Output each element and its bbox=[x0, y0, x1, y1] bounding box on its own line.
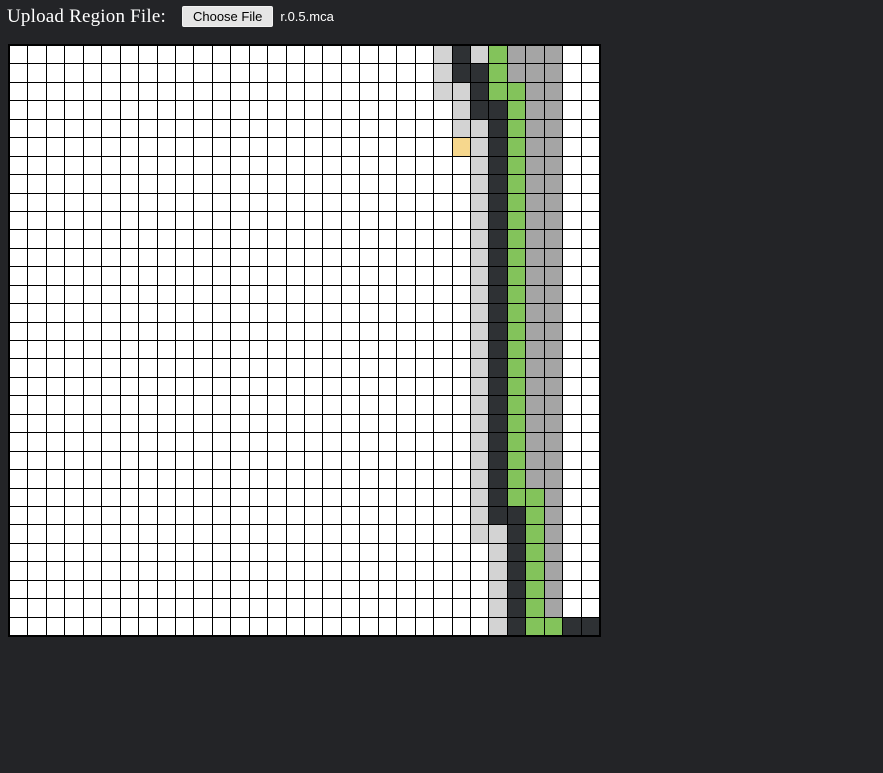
chunk-cell bbox=[323, 120, 340, 137]
chunk-cell bbox=[287, 120, 304, 137]
chunk-cell bbox=[250, 581, 267, 598]
chunk-cell bbox=[139, 396, 156, 413]
chunk-cell bbox=[397, 341, 414, 358]
chunk-cell bbox=[305, 46, 322, 63]
chunk-cell bbox=[342, 359, 359, 376]
chunk-cell bbox=[489, 452, 506, 469]
chunk-cell bbox=[434, 267, 451, 284]
chunk-cell bbox=[287, 470, 304, 487]
chunk-cell bbox=[139, 212, 156, 229]
chunk-cell bbox=[158, 581, 175, 598]
chunk-cell bbox=[508, 83, 525, 100]
chunk-cell bbox=[582, 378, 599, 395]
chunk-cell bbox=[342, 378, 359, 395]
chunk-cell bbox=[176, 489, 193, 506]
chunk-cell bbox=[250, 230, 267, 247]
chunk-cell bbox=[416, 581, 433, 598]
chunk-cell bbox=[47, 341, 64, 358]
chunk-cell bbox=[194, 157, 211, 174]
chunk-cell bbox=[268, 138, 285, 155]
chunk-cell bbox=[453, 323, 470, 340]
chunk-cell bbox=[250, 46, 267, 63]
chunk-cell bbox=[323, 230, 340, 247]
chunk-cell bbox=[434, 230, 451, 247]
chunk-cell bbox=[287, 323, 304, 340]
chunk-cell bbox=[563, 562, 580, 579]
chunk-cell bbox=[489, 618, 506, 635]
chunk-cell bbox=[268, 599, 285, 616]
chunk-cell bbox=[416, 562, 433, 579]
chunk-cell bbox=[416, 267, 433, 284]
chunk-cell bbox=[582, 249, 599, 266]
chunk-cell bbox=[121, 452, 138, 469]
chunk-cell bbox=[139, 433, 156, 450]
chunk-cell bbox=[526, 452, 543, 469]
chunk-cell bbox=[28, 194, 45, 211]
chunk-cell bbox=[176, 304, 193, 321]
chunk-cell bbox=[563, 157, 580, 174]
chunk-cell bbox=[65, 470, 82, 487]
chunk-cell bbox=[139, 452, 156, 469]
chunk-cell bbox=[545, 304, 562, 321]
chunk-cell bbox=[379, 286, 396, 303]
chunk-cell bbox=[287, 64, 304, 81]
chunk-cell bbox=[10, 581, 27, 598]
chunk-cell bbox=[65, 249, 82, 266]
chunk-cell bbox=[158, 138, 175, 155]
chunk-cell bbox=[360, 323, 377, 340]
chunk-cell bbox=[508, 452, 525, 469]
chunk-cell bbox=[47, 618, 64, 635]
chunk-cell bbox=[545, 525, 562, 542]
chunk-cell bbox=[268, 489, 285, 506]
chunk-cell bbox=[416, 452, 433, 469]
chunk-cell bbox=[508, 359, 525, 376]
chunk-cell bbox=[250, 101, 267, 118]
chunk-cell bbox=[379, 230, 396, 247]
chunk-cell bbox=[545, 230, 562, 247]
chunk-cell bbox=[84, 267, 101, 284]
chunk-cell bbox=[471, 64, 488, 81]
chunk-cell bbox=[84, 341, 101, 358]
chunk-cell bbox=[84, 618, 101, 635]
chunk-cell bbox=[360, 120, 377, 137]
chunk-cell bbox=[10, 101, 27, 118]
chunk-cell bbox=[489, 175, 506, 192]
chunk-cell bbox=[84, 304, 101, 321]
chunk-cell bbox=[47, 194, 64, 211]
chunk-cell bbox=[397, 415, 414, 432]
chunk-cell bbox=[526, 544, 543, 561]
chunk-cell bbox=[28, 489, 45, 506]
chunk-cell bbox=[453, 415, 470, 432]
chunk-cell bbox=[250, 194, 267, 211]
chunk-cell bbox=[489, 212, 506, 229]
chunk-cell bbox=[508, 341, 525, 358]
chunk-cell bbox=[416, 157, 433, 174]
chunk-cell bbox=[508, 618, 525, 635]
chunk-cell bbox=[582, 46, 599, 63]
chunk-cell bbox=[102, 378, 119, 395]
chunk-cell bbox=[323, 64, 340, 81]
chunk-cell bbox=[158, 525, 175, 542]
chunk-cell bbox=[213, 194, 230, 211]
chunk-cell bbox=[416, 341, 433, 358]
chunk-cell bbox=[250, 138, 267, 155]
chunk-cell bbox=[213, 359, 230, 376]
chunk-cell bbox=[47, 64, 64, 81]
chunk-cell bbox=[121, 359, 138, 376]
chunk-cell bbox=[582, 138, 599, 155]
chunk-cell bbox=[65, 489, 82, 506]
chunk-cell bbox=[194, 323, 211, 340]
chunk-cell bbox=[508, 194, 525, 211]
chunk-cell bbox=[121, 230, 138, 247]
chunk-cell bbox=[489, 341, 506, 358]
chunk-cell bbox=[250, 525, 267, 542]
chunk-cell bbox=[526, 433, 543, 450]
chunk-cell bbox=[582, 286, 599, 303]
chunk-cell bbox=[360, 194, 377, 211]
chunk-cell bbox=[102, 544, 119, 561]
chunk-cell bbox=[158, 212, 175, 229]
chunk-cell bbox=[471, 470, 488, 487]
chunk-cell bbox=[471, 304, 488, 321]
chunk-cell bbox=[250, 120, 267, 137]
chunk-cell bbox=[121, 618, 138, 635]
chunk-cell bbox=[508, 378, 525, 395]
chunk-cell bbox=[305, 378, 322, 395]
chunk-cell bbox=[379, 175, 396, 192]
chunk-cell bbox=[305, 599, 322, 616]
chunk-cell bbox=[28, 304, 45, 321]
chunk-cell bbox=[323, 415, 340, 432]
chunk-cell bbox=[47, 230, 64, 247]
chunk-cell bbox=[158, 452, 175, 469]
chunk-cell bbox=[102, 101, 119, 118]
chunk-cell bbox=[342, 396, 359, 413]
chunk-cell bbox=[139, 618, 156, 635]
chunk-cell bbox=[379, 101, 396, 118]
chunk-cell bbox=[231, 157, 248, 174]
chunk-cell bbox=[250, 415, 267, 432]
chunk-cell bbox=[250, 378, 267, 395]
chunk-cell bbox=[231, 304, 248, 321]
chunk-cell bbox=[102, 175, 119, 192]
chunk-cell bbox=[287, 101, 304, 118]
chunk-cell bbox=[305, 452, 322, 469]
chunk-cell bbox=[563, 359, 580, 376]
chunk-cell bbox=[231, 562, 248, 579]
chunk-cell bbox=[194, 267, 211, 284]
chunk-cell bbox=[139, 64, 156, 81]
chunk-cell bbox=[379, 581, 396, 598]
chunk-cell bbox=[102, 212, 119, 229]
chunk-cell bbox=[471, 433, 488, 450]
chunk-cell bbox=[471, 599, 488, 616]
chunk-cell bbox=[434, 359, 451, 376]
chunk-cell bbox=[65, 599, 82, 616]
chunk-cell bbox=[453, 267, 470, 284]
chunk-cell bbox=[10, 83, 27, 100]
chunk-cell bbox=[10, 525, 27, 542]
chunk-cell bbox=[287, 378, 304, 395]
chunk-cell bbox=[250, 83, 267, 100]
chunk-cell bbox=[102, 138, 119, 155]
chunk-cell bbox=[379, 359, 396, 376]
chunk-cell bbox=[121, 581, 138, 598]
chunk-cell bbox=[453, 194, 470, 211]
chunk-cell bbox=[268, 83, 285, 100]
chunk-cell bbox=[65, 562, 82, 579]
chunk-cell bbox=[28, 433, 45, 450]
chunk-cell bbox=[416, 599, 433, 616]
chunk-cell bbox=[47, 525, 64, 542]
chunk-cell bbox=[213, 507, 230, 524]
chunk-cell bbox=[139, 249, 156, 266]
chunk-cell bbox=[176, 323, 193, 340]
chunk-cell bbox=[508, 249, 525, 266]
chunk-cell bbox=[250, 544, 267, 561]
chunk-cell bbox=[102, 599, 119, 616]
chunk-cell bbox=[47, 507, 64, 524]
chunk-cell bbox=[102, 396, 119, 413]
chunk-cell bbox=[10, 249, 27, 266]
chunk-cell bbox=[194, 396, 211, 413]
chunk-cell bbox=[213, 249, 230, 266]
chunk-cell bbox=[10, 470, 27, 487]
chunk-cell bbox=[397, 64, 414, 81]
chunk-cell bbox=[397, 470, 414, 487]
chunk-cell bbox=[213, 433, 230, 450]
chunk-cell bbox=[508, 138, 525, 155]
chunk-cell bbox=[545, 507, 562, 524]
chunk-cell bbox=[213, 267, 230, 284]
chunk-cell bbox=[121, 83, 138, 100]
chunk-cell bbox=[47, 212, 64, 229]
chunk-cell bbox=[10, 230, 27, 247]
chunk-cell bbox=[176, 433, 193, 450]
chunk-cell bbox=[176, 212, 193, 229]
chunk-cell bbox=[268, 212, 285, 229]
chunk-cell bbox=[323, 562, 340, 579]
chunk-cell bbox=[305, 83, 322, 100]
chunk-cell bbox=[102, 64, 119, 81]
chunk-cell bbox=[176, 267, 193, 284]
chunk-cell bbox=[323, 433, 340, 450]
chunk-cell bbox=[250, 304, 267, 321]
chunk-cell bbox=[397, 175, 414, 192]
chunk-cell bbox=[268, 618, 285, 635]
chunk-cell bbox=[416, 138, 433, 155]
chunk-cell bbox=[397, 249, 414, 266]
chunk-cell bbox=[342, 581, 359, 598]
chunk-cell bbox=[397, 618, 414, 635]
chunk-cell bbox=[305, 359, 322, 376]
chunk-cell bbox=[342, 194, 359, 211]
chunk-cell bbox=[545, 194, 562, 211]
chunk-cell bbox=[28, 581, 45, 598]
chunk-cell bbox=[102, 452, 119, 469]
chunk-cell bbox=[287, 175, 304, 192]
chunk-cell bbox=[250, 175, 267, 192]
chunk-cell bbox=[489, 323, 506, 340]
chunk-cell bbox=[434, 378, 451, 395]
chunk-cell bbox=[471, 378, 488, 395]
chunk-cell bbox=[489, 194, 506, 211]
chunk-cell bbox=[231, 230, 248, 247]
chunk-cell bbox=[545, 323, 562, 340]
chunk-cell bbox=[360, 138, 377, 155]
chunk-cell bbox=[563, 544, 580, 561]
chunk-cell bbox=[194, 212, 211, 229]
chunk-cell bbox=[526, 230, 543, 247]
chunk-cell bbox=[231, 286, 248, 303]
chunk-cell bbox=[250, 507, 267, 524]
chunk-cell bbox=[47, 286, 64, 303]
chunk-cell bbox=[176, 562, 193, 579]
chunk-cell bbox=[397, 507, 414, 524]
chunk-cell bbox=[139, 286, 156, 303]
chunk-cell bbox=[526, 304, 543, 321]
chunk-cell bbox=[397, 157, 414, 174]
chunk-cell bbox=[65, 618, 82, 635]
chunk-cell bbox=[231, 64, 248, 81]
chunk-cell bbox=[563, 433, 580, 450]
chunk-cell bbox=[342, 323, 359, 340]
chunk-cell bbox=[526, 286, 543, 303]
chunk-cell bbox=[28, 46, 45, 63]
chunk-cell bbox=[194, 581, 211, 598]
chunk-cell bbox=[176, 359, 193, 376]
chunk-cell bbox=[489, 249, 506, 266]
chunk-cell bbox=[287, 359, 304, 376]
chunk-cell bbox=[416, 433, 433, 450]
chunk-cell bbox=[84, 562, 101, 579]
chunk-cell bbox=[582, 581, 599, 598]
chunk-cell bbox=[526, 525, 543, 542]
chunk-cell bbox=[102, 194, 119, 211]
chunk-cell bbox=[323, 249, 340, 266]
chunk-cell bbox=[176, 64, 193, 81]
chunk-cell bbox=[65, 341, 82, 358]
chunk-cell bbox=[582, 64, 599, 81]
chunk-cell bbox=[213, 415, 230, 432]
chunk-cell bbox=[213, 618, 230, 635]
chunk-cell bbox=[47, 599, 64, 616]
chunk-cell bbox=[268, 452, 285, 469]
selected-file-name: r.0.5.mca bbox=[280, 9, 333, 24]
chunk-cell bbox=[287, 396, 304, 413]
chunk-cell bbox=[526, 599, 543, 616]
chunk-cell bbox=[508, 120, 525, 137]
chunk-cell bbox=[397, 120, 414, 137]
chunk-cell bbox=[453, 230, 470, 247]
chunk-cell bbox=[213, 83, 230, 100]
chunk-cell bbox=[453, 341, 470, 358]
chunk-cell bbox=[268, 396, 285, 413]
chunk-cell bbox=[121, 507, 138, 524]
chunk-cell bbox=[231, 618, 248, 635]
chunk-cell bbox=[360, 249, 377, 266]
chunk-cell bbox=[305, 544, 322, 561]
chunk-cell bbox=[489, 470, 506, 487]
chunk-cell bbox=[139, 470, 156, 487]
chunk-cell bbox=[84, 581, 101, 598]
chunk-cell bbox=[65, 507, 82, 524]
chunk-cell bbox=[582, 304, 599, 321]
chunk-cell bbox=[65, 396, 82, 413]
chunk-cell bbox=[323, 304, 340, 321]
chunk-cell bbox=[471, 120, 488, 137]
chunk-cell bbox=[508, 470, 525, 487]
chunk-cell bbox=[194, 618, 211, 635]
chunk-cell bbox=[323, 341, 340, 358]
chunk-cell bbox=[268, 507, 285, 524]
chunk-cell bbox=[379, 341, 396, 358]
chunk-cell bbox=[268, 120, 285, 137]
chunk-cell bbox=[323, 489, 340, 506]
chunk-cell bbox=[471, 249, 488, 266]
chunk-cell bbox=[453, 489, 470, 506]
chunk-cell bbox=[194, 101, 211, 118]
chunk-cell bbox=[121, 175, 138, 192]
chunk-cell bbox=[231, 599, 248, 616]
chunk-cell bbox=[342, 230, 359, 247]
chunk-cell bbox=[231, 507, 248, 524]
chunk-cell bbox=[65, 138, 82, 155]
chunk-cell bbox=[434, 433, 451, 450]
chunk-cell bbox=[194, 138, 211, 155]
chunk-cell bbox=[416, 489, 433, 506]
chunk-cell bbox=[102, 415, 119, 432]
chunk-cell bbox=[342, 489, 359, 506]
chunk-cell bbox=[489, 562, 506, 579]
chunk-cell bbox=[360, 489, 377, 506]
chunk-cell bbox=[231, 175, 248, 192]
chunk-cell bbox=[10, 267, 27, 284]
chunk-cell bbox=[434, 562, 451, 579]
chunk-cell bbox=[508, 286, 525, 303]
chunk-cell bbox=[84, 230, 101, 247]
chunk-cell bbox=[268, 525, 285, 542]
chunk-cell bbox=[416, 194, 433, 211]
choose-file-button[interactable]: Choose File bbox=[182, 6, 273, 27]
chunk-cell bbox=[582, 544, 599, 561]
chunk-cell bbox=[84, 525, 101, 542]
chunk-cell bbox=[397, 378, 414, 395]
chunk-cell bbox=[582, 359, 599, 376]
chunk-cell bbox=[489, 286, 506, 303]
chunk-cell bbox=[268, 267, 285, 284]
chunk-cell bbox=[360, 46, 377, 63]
chunk-cell bbox=[397, 267, 414, 284]
chunk-cell bbox=[250, 452, 267, 469]
chunk-cell bbox=[268, 249, 285, 266]
chunk-cell bbox=[176, 101, 193, 118]
chunk-cell bbox=[489, 544, 506, 561]
chunk-cell bbox=[545, 212, 562, 229]
chunk-cell bbox=[416, 101, 433, 118]
chunk-cell bbox=[176, 230, 193, 247]
chunk-cell bbox=[453, 562, 470, 579]
chunk-cell bbox=[121, 415, 138, 432]
chunk-cell bbox=[360, 544, 377, 561]
chunk-cell bbox=[397, 581, 414, 598]
chunk-cell bbox=[305, 396, 322, 413]
chunk-cell bbox=[158, 157, 175, 174]
chunk-cell bbox=[508, 230, 525, 247]
